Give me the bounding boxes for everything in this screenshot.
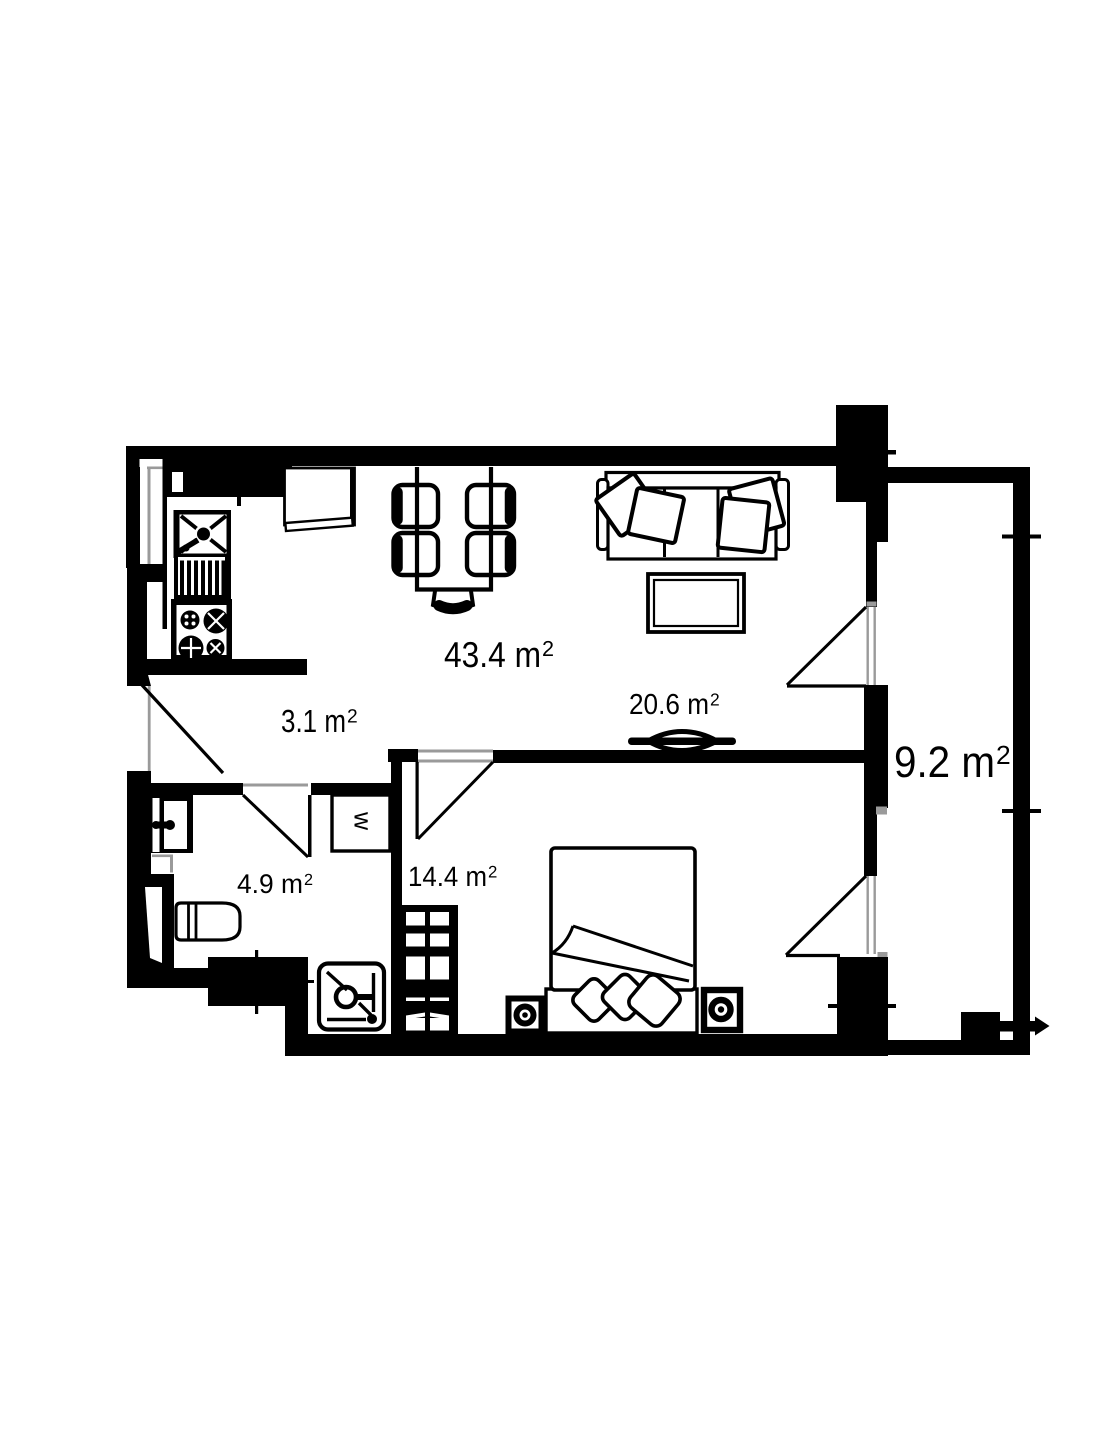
svg-text:2: 2 xyxy=(488,863,497,882)
svg-text:w: w xyxy=(348,811,376,831)
svg-text:2: 2 xyxy=(347,707,358,728)
svg-text:2: 2 xyxy=(542,636,554,661)
svg-text:9.2 m: 9.2 m xyxy=(894,738,995,787)
svg-text:14.4 m: 14.4 m xyxy=(408,861,487,892)
svg-text:20.6 m: 20.6 m xyxy=(629,689,709,721)
svg-text:43.4 m: 43.4 m xyxy=(444,634,541,675)
svg-text:2: 2 xyxy=(996,740,1011,770)
svg-text:2: 2 xyxy=(710,690,720,710)
svg-text:3.1 m: 3.1 m xyxy=(281,703,346,739)
svg-text:2: 2 xyxy=(304,871,313,889)
svg-text:4.9 m: 4.9 m xyxy=(237,869,303,899)
